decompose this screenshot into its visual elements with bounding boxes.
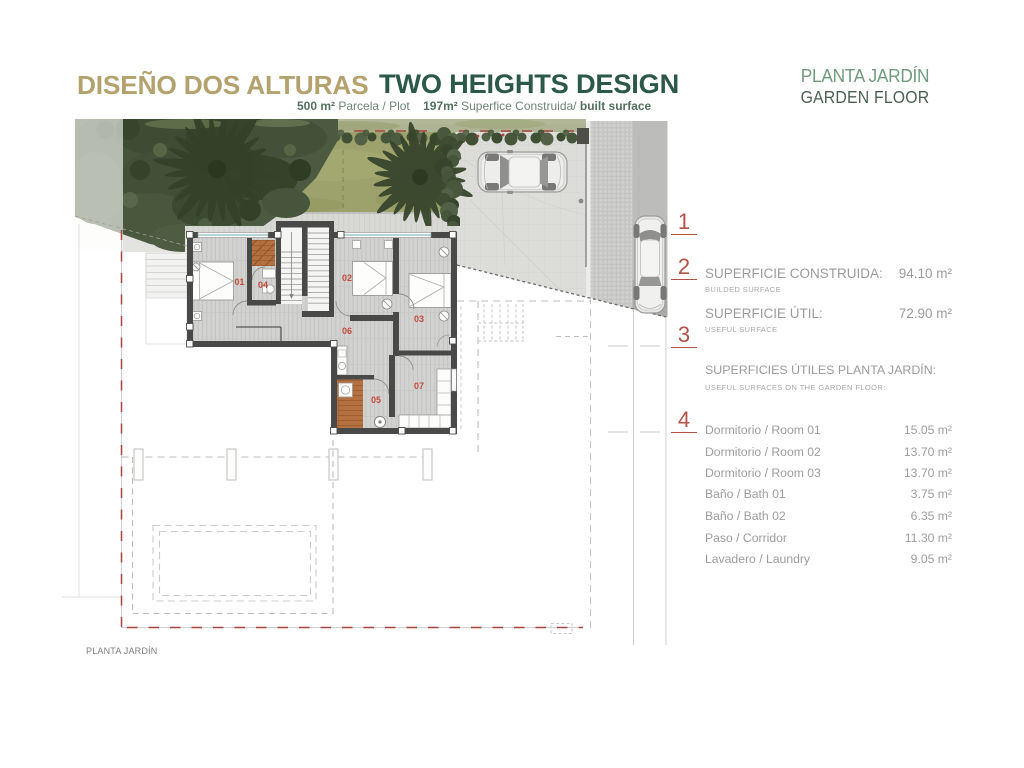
svg-text:03: 03	[414, 314, 424, 324]
svg-text:04: 04	[258, 280, 268, 290]
svg-text:05: 05	[371, 395, 381, 405]
svg-text:02: 02	[342, 273, 352, 283]
svg-text:01: 01	[234, 277, 244, 287]
svg-text:07: 07	[414, 381, 424, 391]
svg-text:06: 06	[342, 326, 352, 336]
